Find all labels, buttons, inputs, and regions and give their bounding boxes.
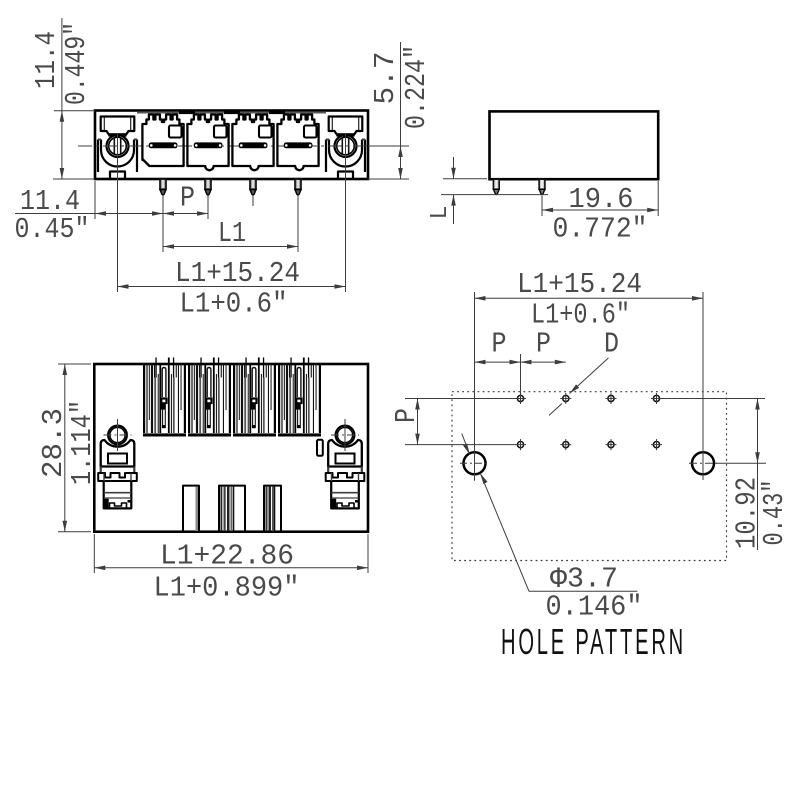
svg-text:0.449": 0.449" xyxy=(60,22,93,105)
svg-text:5.7: 5.7 xyxy=(369,52,402,105)
svg-text:L1+15.24: L1+15.24 xyxy=(517,268,642,301)
svg-text:HOLE PATTERN: HOLE PATTERN xyxy=(501,621,686,662)
svg-text:19.6: 19.6 xyxy=(569,183,634,216)
svg-text:P: P xyxy=(390,408,423,423)
svg-text:L1+0.899": L1+0.899" xyxy=(154,572,300,605)
svg-text:0.772": 0.772" xyxy=(553,213,648,246)
svg-text:0.45": 0.45" xyxy=(15,213,90,246)
svg-text:P: P xyxy=(492,328,507,361)
svg-text:L1+15.24: L1+15.24 xyxy=(175,257,300,290)
svg-text:L1: L1 xyxy=(218,217,246,250)
svg-text:L1+0.6": L1+0.6" xyxy=(180,288,288,321)
svg-text:11.4: 11.4 xyxy=(30,31,63,89)
svg-text:L1+22.86: L1+22.86 xyxy=(160,540,294,573)
svg-text:P: P xyxy=(536,328,551,361)
svg-text:0.146": 0.146" xyxy=(546,591,643,624)
svg-text:0.43": 0.43" xyxy=(758,480,791,546)
svg-text:1.114": 1.114" xyxy=(66,400,99,485)
svg-text:D: D xyxy=(604,328,619,361)
svg-text:0.224": 0.224" xyxy=(400,45,433,129)
svg-text:P: P xyxy=(180,182,195,215)
svg-text:L: L xyxy=(427,206,454,220)
